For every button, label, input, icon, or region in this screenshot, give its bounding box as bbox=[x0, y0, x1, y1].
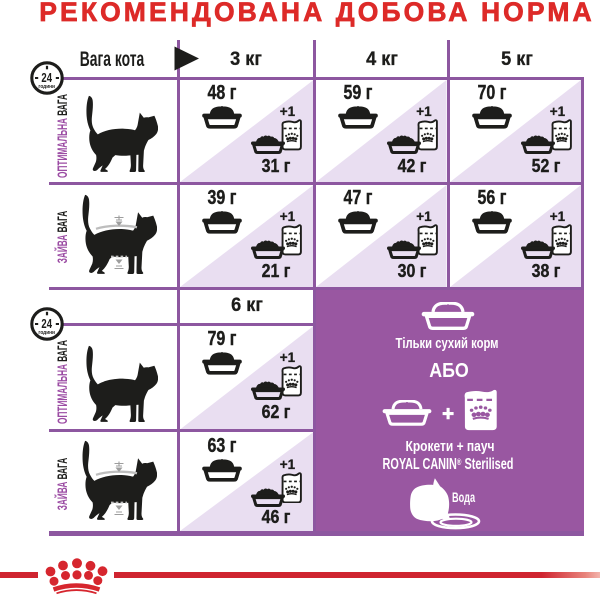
svg-text:24: 24 bbox=[41, 70, 52, 85]
svg-text:години: години bbox=[38, 330, 55, 336]
svg-text:24: 24 bbox=[41, 316, 52, 331]
svg-text:години: години bbox=[38, 84, 55, 90]
